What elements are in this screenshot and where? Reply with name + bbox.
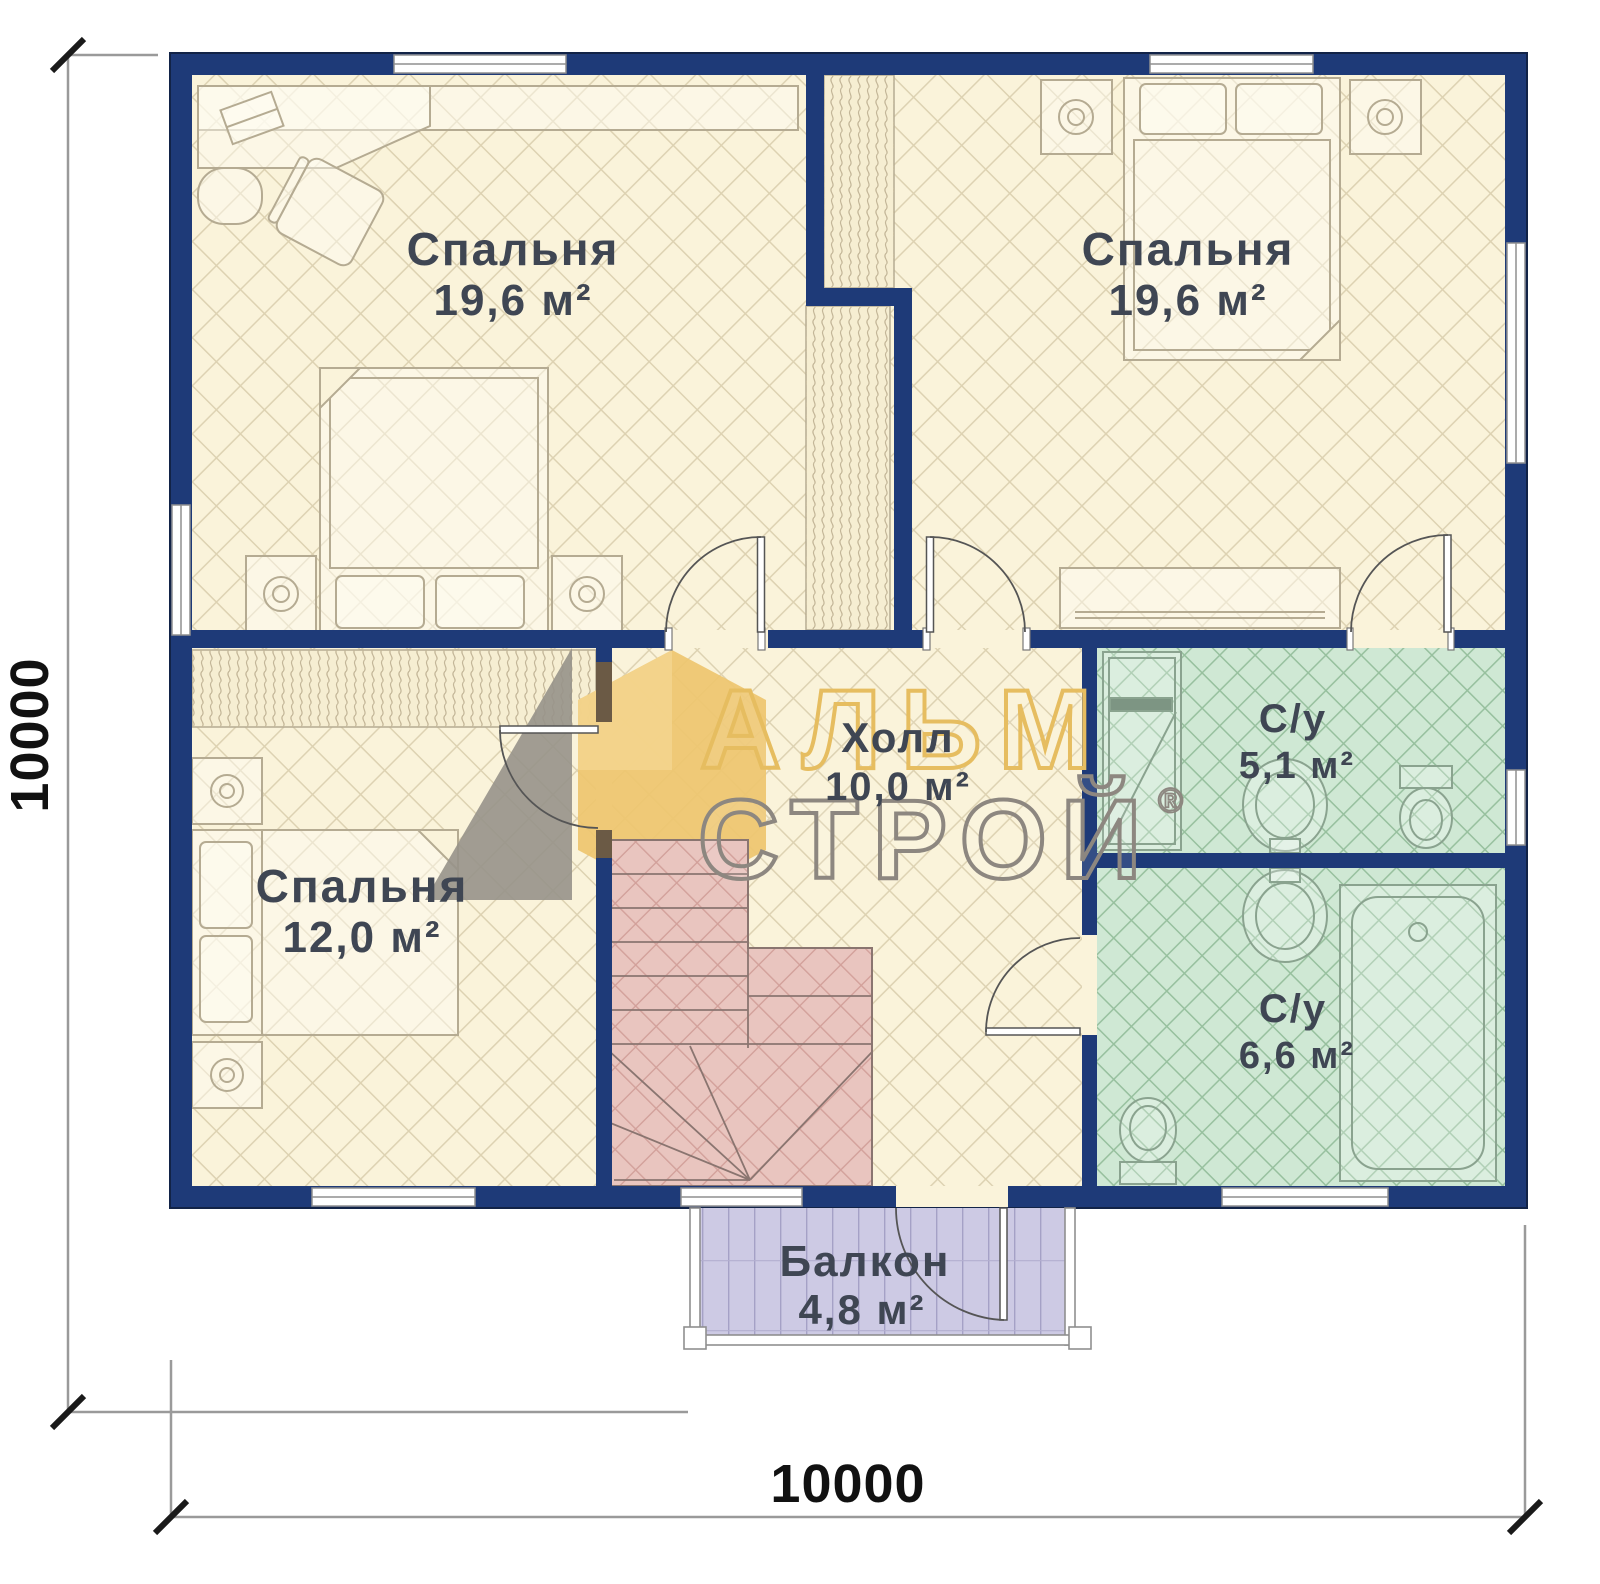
- dimension-width-label: 10000: [770, 1454, 925, 1514]
- shower-bench: [1110, 698, 1172, 711]
- balcony-railing-bottom: [690, 1335, 1075, 1345]
- nightstand: [552, 556, 622, 632]
- toilet-tank: [1400, 766, 1452, 788]
- pillow: [1236, 84, 1322, 134]
- label-balcony-area: 4,8 м²: [798, 1286, 925, 1333]
- label-bedroom-bottom-left-name: Спальня: [256, 860, 469, 912]
- wall-horizontal-b: [768, 630, 925, 648]
- sink-pedestal: [1270, 868, 1300, 882]
- wall-exterior-right: [1505, 53, 1527, 1208]
- label-bedroom-top-right-name: Спальня: [1082, 223, 1295, 275]
- label-hall-area: 10,0 м²: [825, 765, 971, 809]
- pillow: [200, 842, 252, 928]
- wardrobe-bedroom-top-right: [824, 75, 894, 288]
- floor-plan-page: АЛЬМ СТРОЙ ® Спальня 19,6 м² Спальня 19,…: [0, 0, 1600, 1584]
- nightstand: [1350, 80, 1421, 154]
- window-top-bedroom-left: [394, 55, 566, 73]
- toilet-bowl: [1120, 1098, 1176, 1162]
- floor-plan-drawing: АЛЬМ СТРОЙ ® Спальня 19,6 м² Спальня 19,…: [0, 0, 1600, 1584]
- door-leaf: [1000, 1208, 1007, 1320]
- door-jamb-post: [596, 830, 612, 858]
- door-jamb-post: [596, 662, 612, 722]
- door-leaf: [1444, 535, 1451, 632]
- label-bathroom-lower-area: 6,6 м²: [1239, 1035, 1355, 1077]
- window-left-bedroom: [172, 505, 190, 635]
- label-bathroom-upper-name: С/у: [1259, 697, 1327, 741]
- label-bedroom-bottom-left-area: 12,0 м²: [282, 913, 441, 962]
- side-table-round: [198, 168, 262, 224]
- dimension-height-label: 10000: [0, 657, 60, 812]
- balcony-railing-right: [1065, 1208, 1075, 1345]
- nightstand: [246, 556, 316, 632]
- pillow: [1140, 84, 1226, 134]
- toilet-tank: [1120, 1162, 1176, 1184]
- balcony-post: [684, 1327, 706, 1349]
- door-leaf: [758, 537, 765, 632]
- window-bottom-stairwell: [681, 1188, 802, 1206]
- label-bedroom-top-left-area: 19,6 м²: [433, 276, 592, 325]
- wall-bedroom3-right-lower: [596, 858, 612, 1186]
- label-balcony-name: Балкон: [780, 1237, 951, 1286]
- label-hall-name: Холл: [841, 714, 954, 761]
- window-right-bathroom: [1507, 770, 1525, 845]
- door-leaf: [986, 1028, 1080, 1035]
- nightstand: [1041, 80, 1112, 154]
- pillow: [336, 576, 424, 628]
- wall-divider-lower: [894, 288, 912, 648]
- wall-exterior-top: [170, 53, 1527, 75]
- pillow: [436, 576, 524, 628]
- window-bottom-bathroom: [1222, 1188, 1388, 1206]
- wall-divider-upper: [806, 53, 824, 306]
- wall-horizontal-a: [192, 630, 665, 648]
- wardrobe-bedroom-top-left: [806, 306, 890, 630]
- nightstand: [192, 758, 262, 824]
- nightstand: [192, 1042, 262, 1108]
- pillow: [200, 936, 252, 1022]
- door-leaf: [927, 537, 934, 632]
- label-bedroom-top-left-name: Спальня: [407, 223, 620, 275]
- label-bathroom-lower-name: С/у: [1259, 987, 1327, 1031]
- window-bottom-bedroom: [312, 1188, 475, 1206]
- wall-horizontal-d: [1452, 630, 1505, 648]
- label-bedroom-top-right-area: 19,6 м²: [1108, 276, 1267, 325]
- bathtub: [1340, 885, 1496, 1181]
- wall-bathrooms-left-lower: [1082, 1035, 1097, 1186]
- window-right-bedroom: [1507, 243, 1525, 463]
- label-bathroom-upper-area: 5,1 м²: [1239, 745, 1355, 787]
- balcony-post: [1069, 1327, 1091, 1349]
- wall-bedroom3-right-upper: [596, 648, 612, 662]
- watermark-registered-mark: ®: [1158, 782, 1183, 820]
- balcony-railing-left: [690, 1208, 700, 1345]
- sink-pedestal: [1270, 839, 1300, 853]
- wall-horizontal-c: [1030, 630, 1347, 648]
- window-top-bedroom-right: [1150, 55, 1313, 73]
- door-leaf: [500, 726, 598, 733]
